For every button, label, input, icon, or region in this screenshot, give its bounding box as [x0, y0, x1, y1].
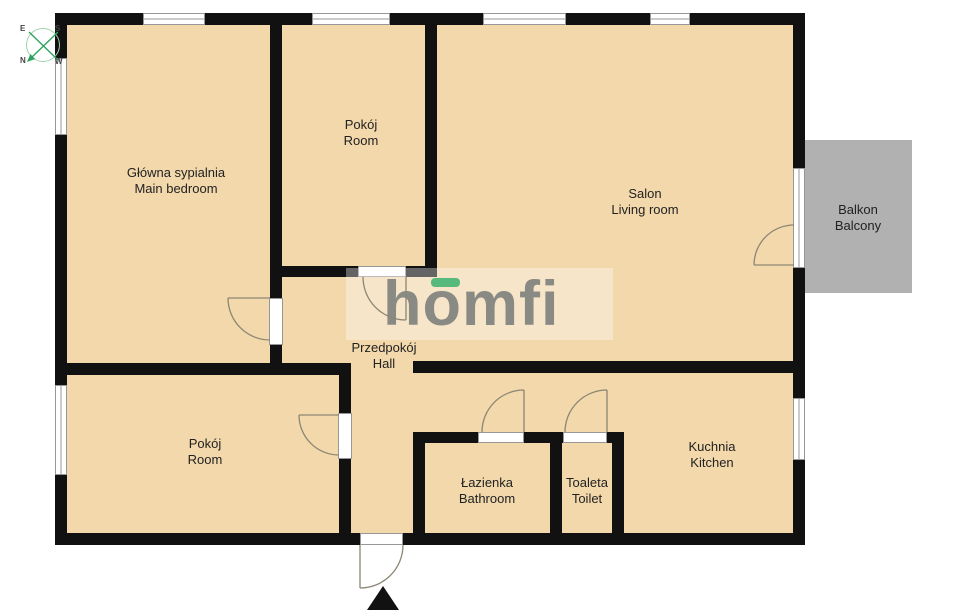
- wall-bathroom-toilet-divider: [550, 432, 562, 545]
- room-label-room-top: Pokój Room: [344, 117, 379, 149]
- room-label-bathroom: Łazienka Bathroom: [459, 475, 515, 507]
- compass-label-w: W: [55, 57, 63, 66]
- room-name-pl: Kuchnia: [689, 439, 736, 455]
- balcony-door-frame: [793, 168, 805, 268]
- wall-bathroom-left: [413, 432, 425, 545]
- compass-arrow-north: [27, 54, 35, 62]
- window-room-top: [312, 13, 390, 25]
- room-name-en: Toilet: [566, 491, 608, 507]
- door-opening-room-bottom: [338, 413, 352, 459]
- homfi-logo-text: homfi: [383, 269, 559, 339]
- room-name-pl: Salon: [611, 186, 678, 202]
- wall-bedroom-room-divider: [55, 363, 351, 375]
- homfi-logo: homfi: [383, 274, 559, 334]
- window-bedroom-top: [143, 13, 205, 25]
- entrance-arrow-icon: [367, 586, 399, 610]
- window-kitchen-right: [793, 398, 805, 460]
- room-name-pl: Pokój: [188, 436, 223, 452]
- door-opening-bathroom: [478, 432, 524, 443]
- room-name-en: Room: [188, 452, 223, 468]
- room-name-en: Bathroom: [459, 491, 515, 507]
- room-label-main-bedroom: Główna sypialnia Main bedroom: [127, 165, 225, 197]
- door-swing-arc: [360, 545, 403, 588]
- door-opening-bedroom: [269, 298, 283, 345]
- wall-outer-bottom: [55, 533, 805, 545]
- room-name-pl: Łazienka: [459, 475, 515, 491]
- compass-label-n: N: [20, 56, 26, 65]
- compass-label-s: S: [55, 24, 60, 33]
- window-salon-top-right: [650, 13, 690, 25]
- room-name-pl: Pokój: [344, 117, 379, 133]
- door-opening-entrance: [360, 533, 403, 545]
- room-name-en: Balcony: [835, 218, 881, 234]
- homfi-logo-green-bar-icon: [431, 278, 460, 287]
- room-label-room-bottom: Pokój Room: [188, 436, 223, 468]
- room-name-pl: Przedpokój: [351, 340, 416, 356]
- room-label-kitchen: Kuchnia Kitchen: [689, 439, 736, 471]
- wall-room-salon: [425, 13, 437, 277]
- window-bedroom-left: [55, 58, 67, 135]
- wall-bathroom-top-a: [413, 432, 478, 443]
- room-label-toilet: Toaleta Toilet: [566, 475, 608, 507]
- wall-hall-south: [413, 361, 805, 373]
- room-name-en: Kitchen: [689, 455, 736, 471]
- wall-kitchen-left: [612, 432, 624, 545]
- room-label-living-room: Salon Living room: [611, 186, 678, 218]
- compass-label-e: E: [20, 24, 25, 33]
- room-name-en: Main bedroom: [127, 181, 225, 197]
- room-name-pl: Główna sypialnia: [127, 165, 225, 181]
- room-name-en: Hall: [351, 356, 416, 372]
- room-label-hall: Przedpokój Hall: [351, 340, 416, 372]
- compass-line-ew: [29, 32, 58, 60]
- wall-hall-top-left: [270, 266, 358, 277]
- compass-line-sn: [31, 32, 58, 58]
- room-name-en: Room: [344, 133, 379, 149]
- window-salon-top-left: [483, 13, 566, 25]
- room-name-pl: Balkon: [835, 202, 881, 218]
- door-opening-toilet: [563, 432, 607, 443]
- room-name-pl: Toaleta: [566, 475, 608, 491]
- room-label-balcony: Balkon Balcony: [835, 202, 881, 234]
- room-name-en: Living room: [611, 202, 678, 218]
- wall-outer-right: [793, 13, 805, 545]
- floor-plan: homfi E S N W Główna sypialnia Main bedr…: [0, 0, 960, 611]
- window-room-bottom-left: [55, 385, 67, 475]
